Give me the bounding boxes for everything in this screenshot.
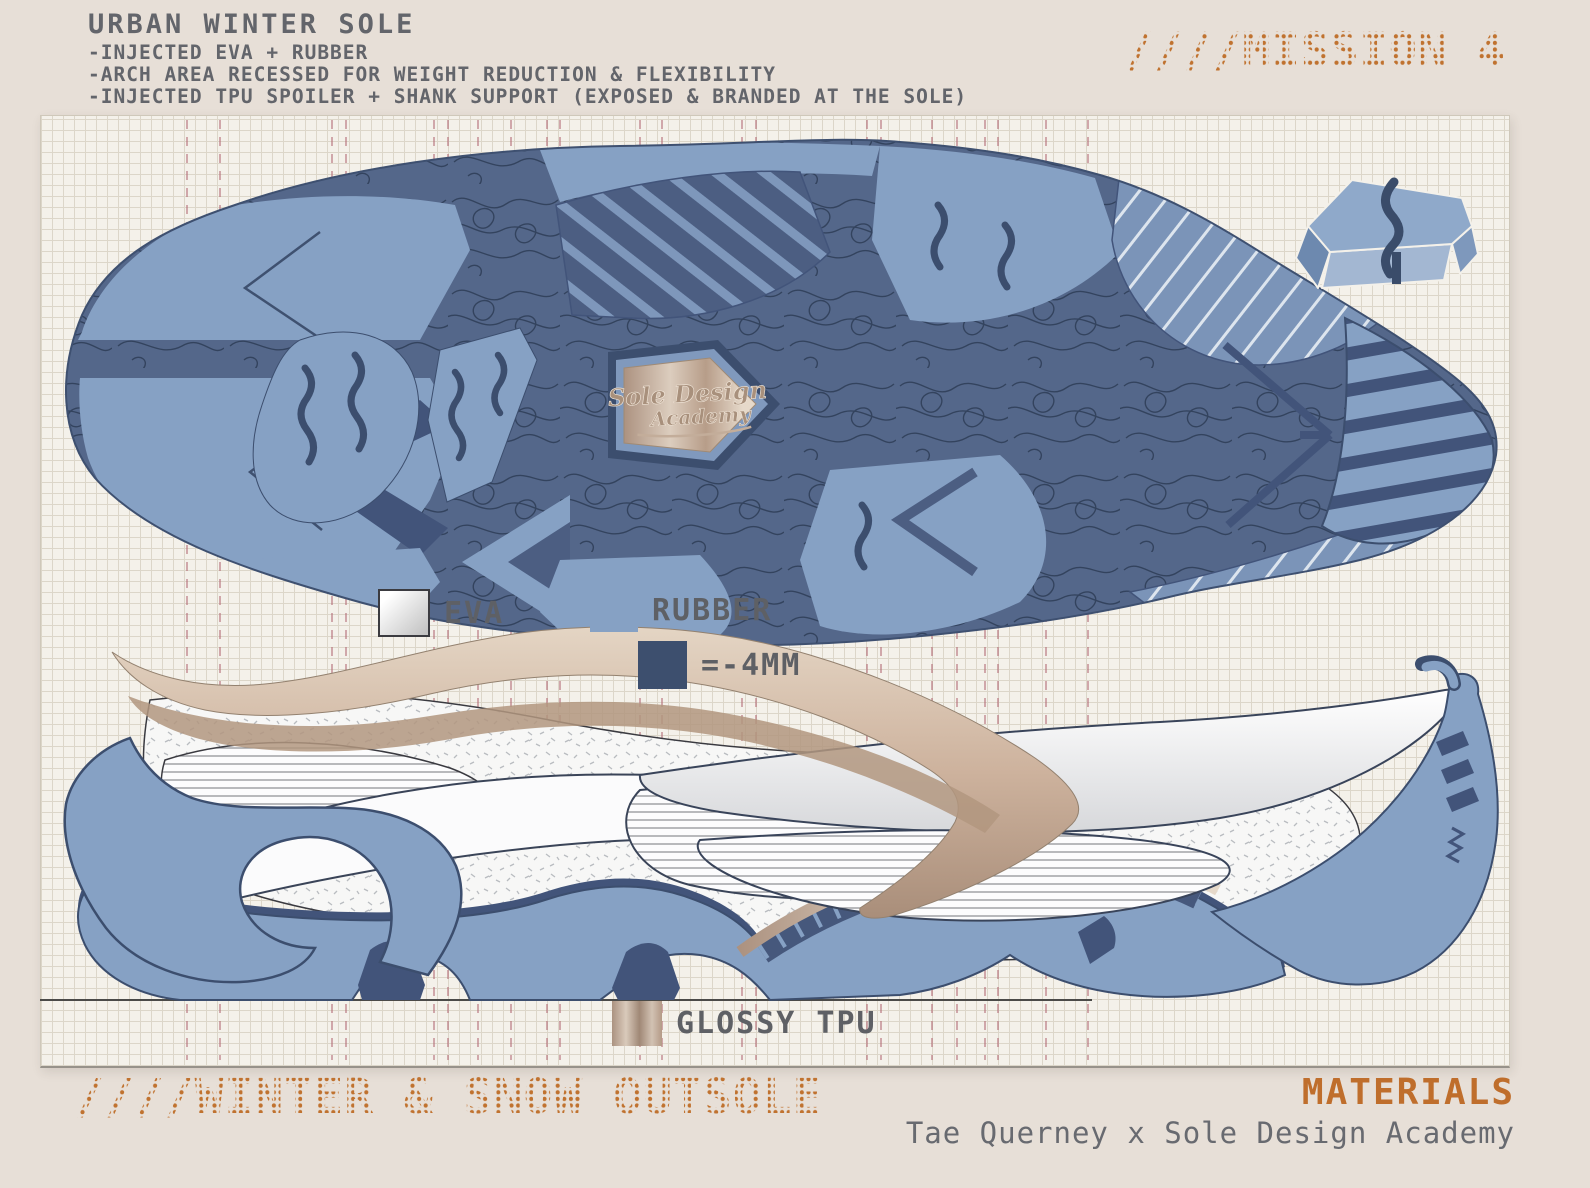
tpu-label: GLOSSY TPU bbox=[676, 1006, 877, 1041]
materials-label: MATERIALS bbox=[906, 1072, 1515, 1114]
depth-swatch bbox=[638, 641, 687, 689]
rubber-label: RUBBER bbox=[652, 593, 772, 628]
depth-label: =-4MM bbox=[701, 648, 801, 683]
legend-item-eva: EVA bbox=[378, 589, 504, 637]
mission-tag: ////MISSION 4 bbox=[1125, 23, 1506, 78]
legend-item-depth: =-4MM bbox=[638, 641, 801, 689]
eva-swatch bbox=[378, 589, 430, 637]
legend-item-tpu: GLOSSY TPU bbox=[612, 1001, 877, 1046]
tpu-swatch bbox=[612, 1001, 662, 1046]
rubber-swatch bbox=[590, 588, 638, 632]
outsole-tag: ////WINTER & SNOW OUTSOLE bbox=[75, 1069, 822, 1125]
byline: Tae Querney x Sole Design Academy bbox=[906, 1114, 1515, 1152]
design-board: Sole Design Academy bbox=[0, 0, 1590, 1188]
legend-item-rubber: RUBBER bbox=[590, 588, 772, 632]
credits-block: MATERIALS Tae Querney x Sole Design Acad… bbox=[906, 1072, 1515, 1152]
eva-label: EVA bbox=[444, 596, 504, 631]
